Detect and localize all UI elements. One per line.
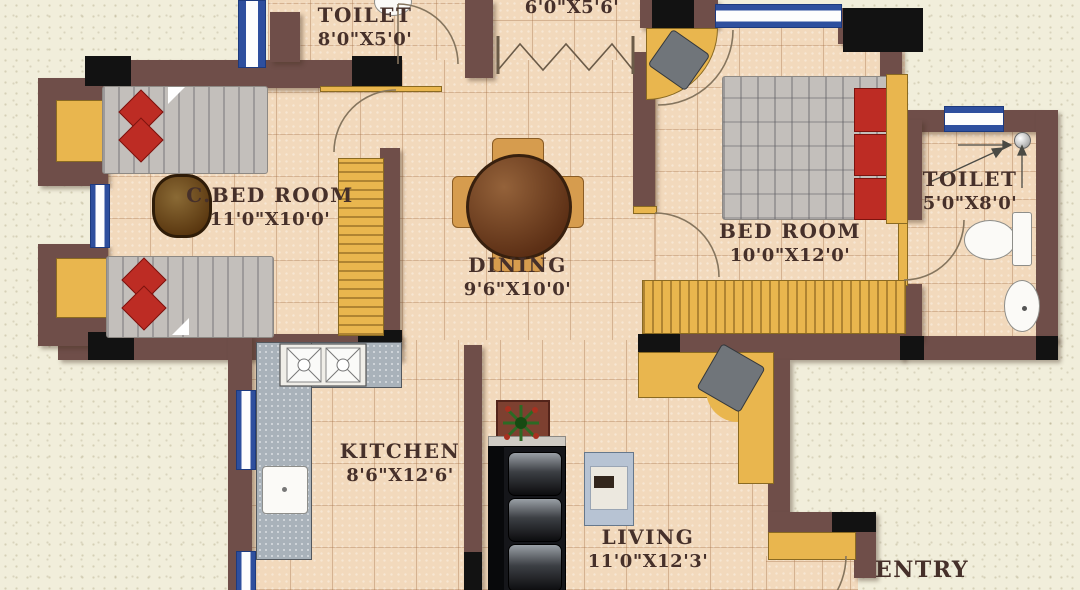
window xyxy=(236,390,256,470)
sheet-fold xyxy=(168,87,185,104)
wall-column-block xyxy=(464,552,482,590)
window xyxy=(238,0,266,68)
toilet-bowl xyxy=(964,220,1016,260)
pillow xyxy=(854,178,888,220)
room-dims: 8'0"X5'0' xyxy=(280,28,450,51)
room-label-bedroom: BED ROOM 10'0"X12'0' xyxy=(690,218,890,267)
room-name: BED ROOM xyxy=(690,218,890,244)
room-name: DINING xyxy=(430,252,605,278)
room-dims: 6'0"X5'6' xyxy=(492,0,652,19)
bed-headboard xyxy=(56,258,110,318)
pillow xyxy=(854,88,888,132)
room-dims: 10'0"X12'0' xyxy=(690,244,890,267)
sink-drain xyxy=(282,487,287,492)
room-dims: 9'6"X10'0' xyxy=(430,278,605,301)
wall-column-block xyxy=(1036,336,1058,360)
wall-column-block xyxy=(352,56,402,86)
window xyxy=(944,106,1004,132)
window xyxy=(90,184,110,248)
room-label-toilet-right: TOILET 5'0"X8'0' xyxy=(895,166,1045,215)
sofa-backrest xyxy=(488,446,504,590)
room-dims: 11'0"X10'0' xyxy=(165,208,375,231)
floor-plan: TOILET 8'0"X5'0' 6'0"X5'6' C.BED ROOM 11… xyxy=(0,0,1080,590)
sofa-cushion xyxy=(508,544,562,590)
sheet-fold xyxy=(172,318,189,335)
room-label-kitchen: KITCHEN 8'6"X12'6' xyxy=(315,438,485,487)
wall-column-block xyxy=(652,0,694,30)
window xyxy=(715,4,842,28)
wall-column-block xyxy=(843,8,923,52)
floor-entry-porch xyxy=(766,556,858,590)
room-name: KITCHEN xyxy=(315,438,485,464)
dining-table xyxy=(466,154,572,260)
window xyxy=(236,551,256,590)
light-fixture xyxy=(1014,132,1031,149)
threshold-trim xyxy=(633,206,657,214)
threshold-trim xyxy=(898,216,908,286)
toilet-tank xyxy=(1012,212,1032,266)
room-label-dining: DINING 9'6"X10'0' xyxy=(430,252,605,301)
wardrobe xyxy=(642,280,906,334)
room-label-foyer: 6'0"X5'6' xyxy=(492,0,652,19)
wall-column-block xyxy=(900,336,924,360)
threshold-trim xyxy=(320,86,442,92)
wall-column-block xyxy=(832,512,876,532)
room-name: C.BED ROOM xyxy=(165,182,375,208)
room-name: TOILET xyxy=(280,2,450,28)
room-label-living: LIVING 11'0"X12'3' xyxy=(558,524,738,573)
room-label-cbedroom: C.BED ROOM 11'0"X10'0' xyxy=(165,182,375,231)
pillow xyxy=(854,134,888,176)
room-name: LIVING xyxy=(558,524,738,550)
room-label-entry: ENTRY xyxy=(852,556,992,585)
room-dims: 5'0"X8'0' xyxy=(895,192,1045,215)
wall-segment xyxy=(465,0,493,78)
kitchen-counter xyxy=(256,342,312,560)
basin-drain xyxy=(1022,306,1027,311)
shoe-cabinet xyxy=(768,532,856,560)
tv-screen xyxy=(594,476,614,488)
tv-frame xyxy=(590,466,628,510)
room-label-toilet-top: TOILET 8'0"X5'0' xyxy=(280,2,450,51)
sofa-cushion xyxy=(508,498,562,542)
room-name: TOILET xyxy=(895,166,1045,192)
sofa-cushion xyxy=(508,452,562,496)
room-dims: 11'0"X12'3' xyxy=(558,550,738,573)
room-name: ENTRY xyxy=(852,556,992,585)
wall-column-block xyxy=(85,56,131,86)
room-dims: 8'6"X12'6' xyxy=(315,464,485,487)
